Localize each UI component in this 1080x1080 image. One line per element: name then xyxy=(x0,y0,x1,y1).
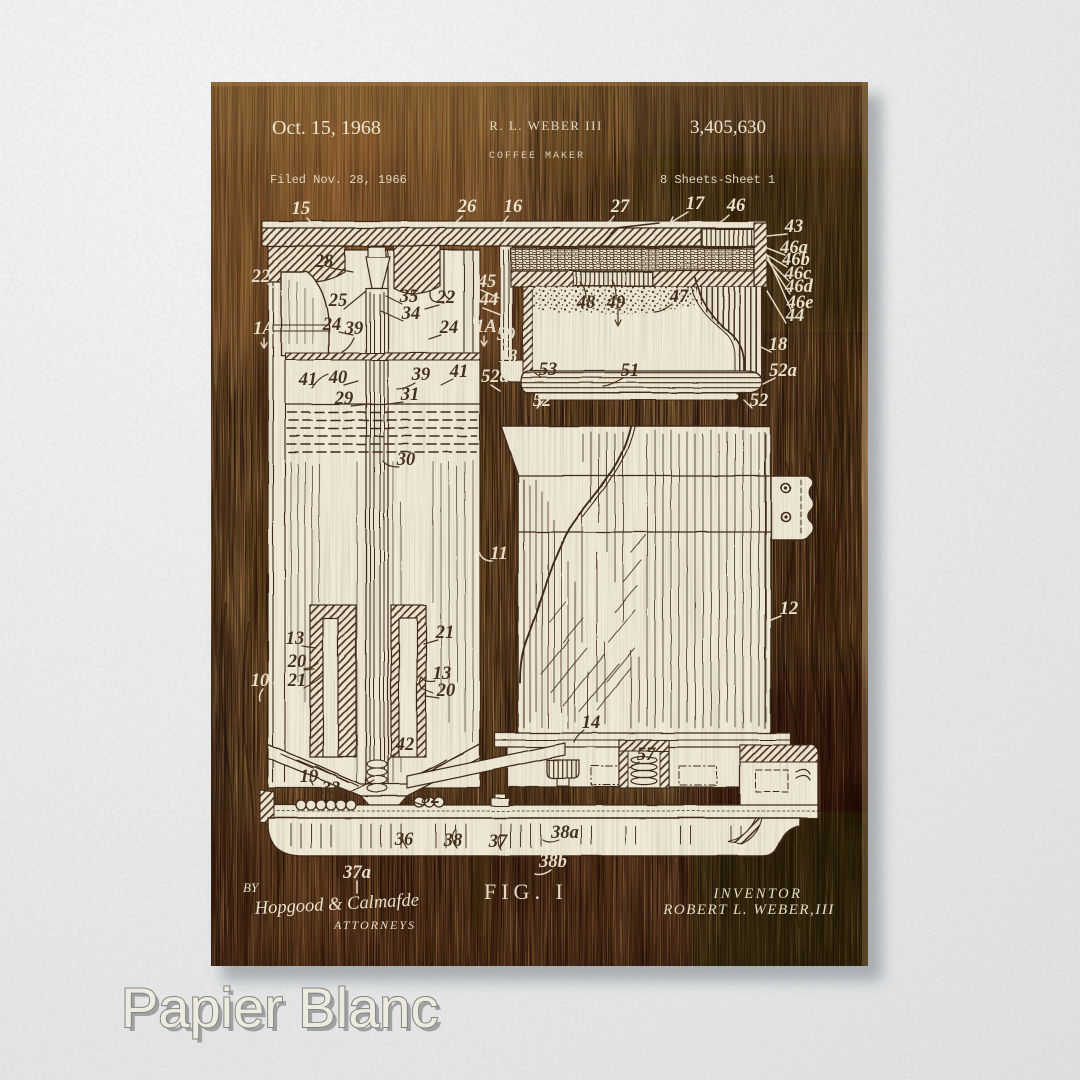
svg-text:Oct. 15, 1968: Oct. 15, 1968 xyxy=(272,117,381,139)
svg-text:Papier Blanc: Papier Blanc xyxy=(121,976,439,1039)
svg-text:R. L. WEBER III: R. L. WEBER III xyxy=(489,118,603,133)
svg-text:ATTORNEYS: ATTORNEYS xyxy=(333,918,416,932)
svg-text:8 Sheets-Sheet 1: 8 Sheets-Sheet 1 xyxy=(660,173,775,187)
svg-text:3,405,630: 3,405,630 xyxy=(690,117,766,138)
svg-text:COFFEE MAKER: COFFEE MAKER xyxy=(489,151,585,162)
svg-text:Filed Nov. 28, 1966: Filed Nov. 28, 1966 xyxy=(270,173,407,187)
svg-text:17: 17 xyxy=(686,194,705,214)
